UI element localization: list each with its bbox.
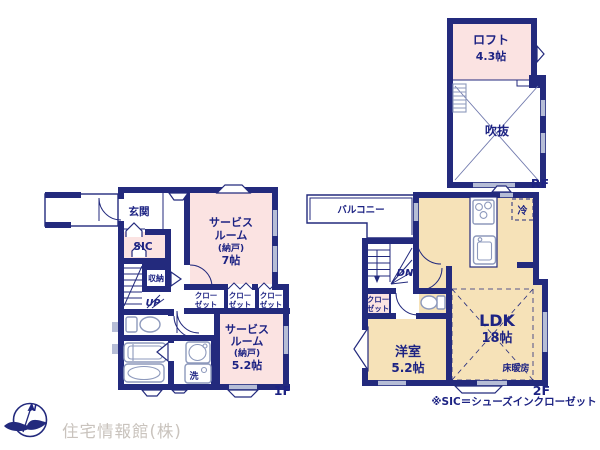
service-room-52-size: 5.2帖 bbox=[232, 358, 263, 372]
fridge-label: 冷 bbox=[518, 204, 528, 217]
window bbox=[229, 385, 257, 389]
closet-label: クロー bbox=[367, 294, 390, 304]
compass-logo: N bbox=[4, 403, 47, 437]
closet-label: ゼット bbox=[260, 299, 283, 309]
laundry-label: 洗 bbox=[189, 370, 198, 382]
closet-label: クロー bbox=[195, 290, 218, 300]
window bbox=[473, 183, 515, 187]
loft-label: ロフト bbox=[473, 33, 509, 47]
window-marker bbox=[455, 386, 502, 393]
window bbox=[541, 133, 545, 153]
bay-window bbox=[354, 328, 368, 370]
dn-label: DN bbox=[397, 268, 414, 279]
bath-washing-area-icon bbox=[124, 364, 164, 382]
service-room-7-size: 7帖 bbox=[222, 253, 241, 267]
stove-icon bbox=[473, 200, 494, 224]
western-room-size: 5.2帖 bbox=[391, 360, 424, 375]
washbasin-icon bbox=[186, 342, 210, 363]
washing-machine-icon: 洗 bbox=[185, 364, 211, 383]
closet-label: ゼット bbox=[229, 299, 252, 309]
window bbox=[112, 344, 118, 354]
void-label: 吹抜 bbox=[485, 123, 510, 138]
service-room-52-label: サービス bbox=[225, 322, 269, 336]
toilet-icon bbox=[421, 296, 445, 309]
kitchen-sink-icon bbox=[474, 236, 496, 264]
window bbox=[273, 246, 277, 272]
western-room-label: 洋室 bbox=[395, 344, 421, 360]
ldk-size: 18帖 bbox=[481, 330, 512, 346]
floor-heating-label: 床暖房 bbox=[502, 362, 529, 374]
rf-plan: ロフト 4.3帖 吹抜 RF bbox=[447, 18, 549, 191]
folding-door-marker bbox=[171, 272, 181, 286]
window bbox=[477, 381, 507, 385]
window-marker bbox=[217, 185, 250, 193]
service-room-7-label: ルーム bbox=[215, 229, 248, 242]
toilet-icon bbox=[126, 317, 160, 332]
window bbox=[112, 322, 118, 332]
window bbox=[541, 100, 545, 116]
window bbox=[378, 381, 406, 385]
window-marker bbox=[172, 390, 187, 393]
window bbox=[543, 312, 547, 352]
closet-label: ゼット bbox=[367, 303, 390, 313]
f1-floor-label: 1F bbox=[274, 383, 291, 398]
floorplan-image: ロフト 4.3帖 吹抜 RF バルコニー bbox=[0, 0, 600, 450]
window bbox=[284, 326, 288, 354]
kitchen-counter bbox=[470, 197, 497, 267]
floor-1f-plan: UP 洗 bbox=[45, 185, 291, 398]
bird-logo-icon bbox=[4, 420, 47, 431]
loft-size-label: 4.3帖 bbox=[476, 49, 507, 63]
window-marker bbox=[142, 390, 162, 396]
entrance-step-marker bbox=[126, 223, 142, 237]
north-label: N bbox=[29, 404, 37, 414]
up-label: UP bbox=[146, 298, 161, 309]
closet-label: ゼット bbox=[195, 299, 218, 309]
loft-window-marker bbox=[537, 46, 544, 62]
balcony-label: バルコニー bbox=[337, 204, 384, 216]
service-room-52-label: ルーム bbox=[231, 335, 264, 348]
stairs-down: DN bbox=[368, 244, 414, 284]
sic-note: ※SIC＝シューズインクローゼット bbox=[431, 395, 596, 408]
balcony: バルコニー bbox=[307, 195, 415, 238]
company-watermark: 住宅情報館(株) bbox=[62, 422, 182, 441]
rf-floor-label: RF bbox=[531, 176, 549, 191]
storage-label: 収納 bbox=[148, 273, 164, 283]
floor-2f-plan: バルコニー DN bbox=[307, 186, 550, 398]
service-room-7-label: サービス bbox=[209, 215, 253, 229]
window bbox=[414, 203, 418, 221]
porch bbox=[45, 192, 121, 228]
closet-label: クロー bbox=[260, 290, 283, 300]
ldk-label: LDK bbox=[479, 311, 515, 330]
service-room-52-label: (納戸) bbox=[234, 347, 260, 359]
window-marker bbox=[228, 390, 258, 397]
entrance-label: 玄関 bbox=[129, 205, 150, 218]
service-room-7-label: (納戸) bbox=[218, 242, 244, 254]
window bbox=[500, 193, 513, 197]
door-arc bbox=[396, 293, 418, 315]
sic-label: SIC bbox=[133, 241, 152, 253]
door-arc bbox=[177, 311, 199, 333]
closet-label: クロー bbox=[229, 290, 252, 300]
window bbox=[273, 210, 277, 236]
